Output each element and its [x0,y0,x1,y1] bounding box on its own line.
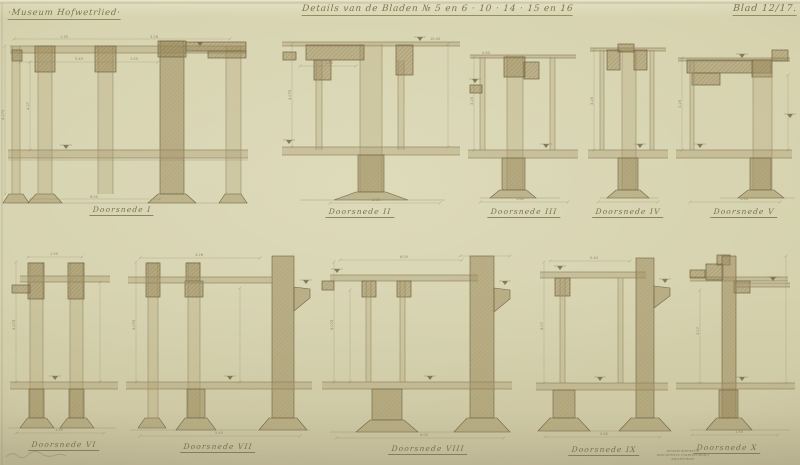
section-doorsnede-iii: Doorsnede III [466,36,580,220]
section-label: Doorsnede VII [180,442,256,453]
section-doorsnede-ii: Doorsnede II [280,36,462,220]
section-doorsnede-iv: Doorsnede IV [586,36,670,220]
section-label: Doorsnede I [89,205,154,216]
sheet-title: Details van de Bladen № 5 en 6 · 10 · 14… [302,4,574,16]
section-doorsnede-x: Doorsnede X [674,250,795,451]
section-doorsnede-i: Doorsnede I [8,36,250,218]
section-label: Doorsnede VI [28,440,100,451]
section-label: Doorsnede IV [592,207,664,218]
sheet-number: Blad 12/17. [733,3,798,16]
stamp-line: amsterdam [644,457,722,461]
section-label: Doorsnede III [487,207,560,218]
section-doorsnede-viii: Doorsnede VIII [320,250,514,452]
section-doorsnede-v: Doorsnede V [674,36,794,220]
section-label: Doorsnede II [325,207,394,218]
section-doorsnede-vi: Doorsnede VI [8,250,120,448]
project-title: ·Museum Hofwetrlied· [8,8,121,20]
section-label: Doorsnede IX [568,445,640,456]
drawing-sheet: ·Museum Hofwetrlied· Details van de Blad… [0,0,800,465]
section-doorsnede-vii: Doorsnede VII [124,250,314,450]
section-label: Doorsnede VIII [388,444,468,455]
section-label: Doorsnede V [710,207,778,218]
contractor-stamp: amsterdamsche aannemers maatschappij ams… [644,449,722,462]
section-doorsnede-ix: Doorsnede IX [534,250,670,453]
svg-text:4.275: 4.275 [1,110,5,120]
